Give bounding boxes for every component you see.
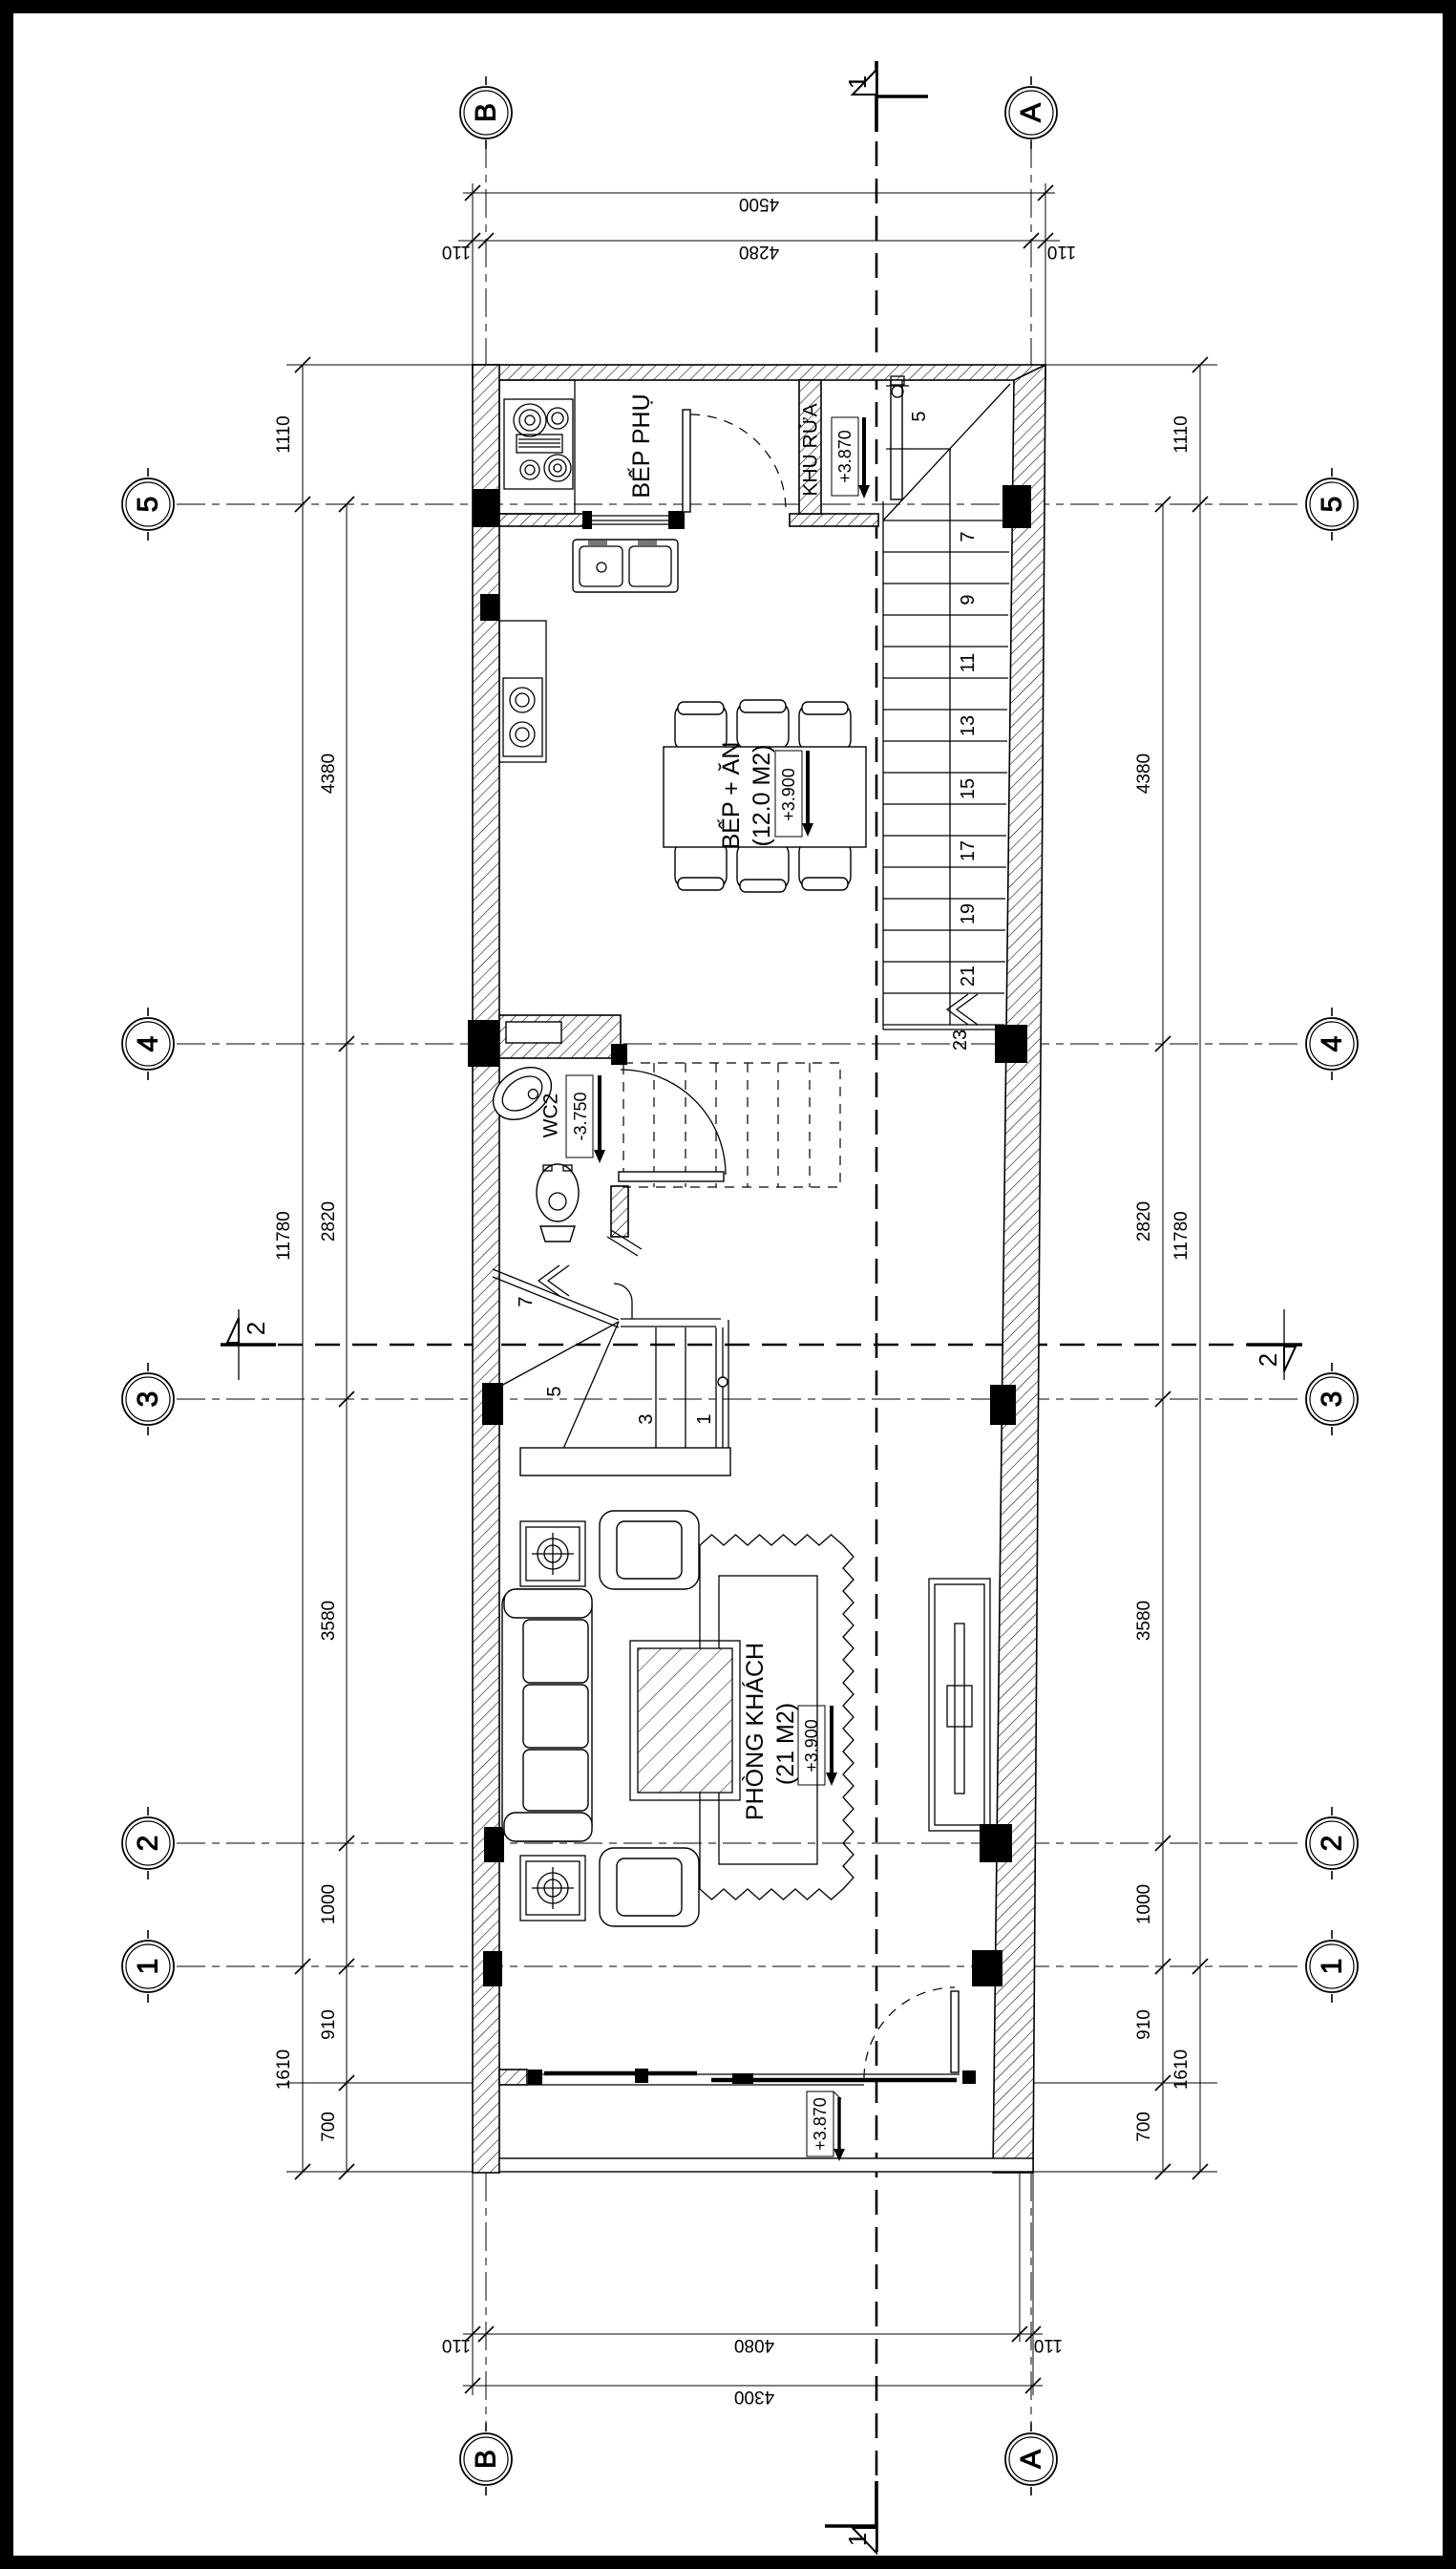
svg-text:9: 9 — [958, 594, 979, 605]
dim-top-total: 4500 — [739, 194, 779, 214]
svg-text:+3.870: +3.870 — [835, 430, 855, 483]
kitchen-sink-icon — [573, 540, 678, 592]
svg-text:1110: 1110 — [1171, 415, 1192, 453]
window-post-right — [668, 511, 685, 529]
svg-text:700: 700 — [319, 2112, 339, 2142]
svg-text:1000: 1000 — [1134, 1884, 1154, 1924]
coffee-table-icon — [630, 1641, 740, 1800]
column — [484, 1827, 504, 1862]
svg-text:23: 23 — [950, 1030, 971, 1051]
wc2-door-post — [611, 1044, 627, 1065]
wall-khu-rua-right — [891, 380, 902, 499]
svg-text:11780: 11780 — [1171, 1211, 1192, 1260]
svg-text:1: 1 — [133, 1959, 164, 1975]
window-post-left — [582, 511, 592, 529]
svg-text:+3.900: +3.900 — [779, 768, 798, 821]
svg-text:3: 3 — [133, 1391, 164, 1408]
wall-left — [473, 365, 499, 2173]
svg-text:1: 1 — [843, 75, 872, 89]
sofa-icon — [502, 1589, 592, 1841]
entry-door-leaf — [951, 1991, 959, 2072]
column — [990, 1385, 1016, 1425]
svg-text:2: 2 — [1254, 1353, 1282, 1367]
dim-bottom-left-off: 110 — [442, 2335, 471, 2355]
wall-divider-kitchen — [499, 514, 589, 526]
column — [482, 1383, 503, 1425]
wall-grid4-niche — [506, 1022, 561, 1043]
dim-bottom-mid: 4080 — [734, 2335, 774, 2355]
svg-text:21: 21 — [958, 966, 979, 987]
svg-text:2820: 2820 — [319, 1201, 339, 1242]
dim-bottom-total: 4300 — [734, 2387, 774, 2407]
svg-text:3580: 3580 — [1134, 1601, 1154, 1641]
svg-text:1610: 1610 — [274, 2049, 294, 2090]
svg-text:3: 3 — [1317, 1391, 1348, 1408]
svg-text:910: 910 — [319, 2009, 339, 2040]
svg-text:19: 19 — [958, 903, 979, 924]
wall-wc2-stub — [611, 1186, 628, 1237]
balcony-parapet — [499, 2158, 1033, 2172]
khu-rua-label: KHU RỬA — [799, 403, 822, 496]
svg-text:1: 1 — [694, 1413, 715, 1424]
svg-text:5: 5 — [909, 411, 930, 421]
wc2-toilet-icon — [537, 1164, 579, 1242]
svg-text:700: 700 — [1134, 2112, 1154, 2142]
svg-text:+3.900: +3.900 — [802, 1719, 821, 1773]
svg-text:2820: 2820 — [1134, 1201, 1154, 1242]
svg-text:1: 1 — [843, 2533, 872, 2546]
svg-text:5: 5 — [1317, 497, 1348, 513]
svg-text:1000: 1000 — [319, 1884, 339, 1924]
svg-text:2: 2 — [133, 1836, 164, 1852]
svg-text:13: 13 — [958, 715, 979, 736]
svg-text:+3.870: +3.870 — [811, 2097, 830, 2151]
svg-text:1: 1 — [1317, 1959, 1348, 1975]
svg-text:B: B — [471, 2450, 502, 2469]
svg-text:7: 7 — [516, 1296, 537, 1306]
wall-balcony-stub — [499, 2070, 527, 2085]
column — [468, 1020, 499, 1067]
wc2-label: WC2 — [540, 1093, 562, 1138]
svg-text:B: B — [471, 103, 502, 122]
svg-text:2: 2 — [242, 1322, 270, 1335]
svg-text:3580: 3580 — [319, 1601, 339, 1641]
dim-bottom-right-off: 110 — [1034, 2335, 1063, 2355]
column — [980, 1824, 1012, 1862]
column — [483, 1951, 502, 1986]
floor-plan-svg: B A B A 5 4 3 2 1 5 4 3 2 1 1 1 2 2 4500… — [0, 0, 1456, 2569]
svg-text:910: 910 — [1134, 2009, 1154, 2040]
svg-text:4380: 4380 — [319, 754, 339, 794]
bep-phu-door-leaf — [683, 410, 690, 512]
drawing-sheet: B A B A 5 4 3 2 1 5 4 3 2 1 1 1 2 2 4500… — [0, 0, 1456, 2569]
svg-text:5: 5 — [133, 497, 164, 513]
svg-text:15: 15 — [958, 778, 979, 799]
door-track-block — [962, 2070, 976, 2084]
svg-text:4: 4 — [133, 1036, 164, 1052]
bep-an-area: (12.0 M2) — [749, 745, 775, 847]
armchair-icon — [600, 1511, 699, 1589]
column — [995, 1025, 1027, 1063]
bep-an-label: BẾP + ĂN — [717, 742, 745, 850]
wall-top — [473, 365, 1045, 380]
svg-text:A: A — [1016, 103, 1047, 122]
svg-text:4: 4 — [1317, 1036, 1348, 1052]
door-track-block — [635, 2069, 648, 2083]
svg-text:7: 7 — [958, 531, 979, 541]
dim-top-left-off: 110 — [442, 242, 471, 262]
svg-text:11: 11 — [958, 653, 979, 673]
dim-top-mid: 4280 — [739, 242, 779, 262]
door-track-block — [528, 2070, 542, 2085]
svg-text:A: A — [1016, 2450, 1047, 2469]
phong-khach-area: (21 M2) — [772, 1703, 799, 1785]
wall-divider-kitchen2 — [790, 514, 878, 526]
svg-text:2: 2 — [1317, 1836, 1348, 1852]
stair-newel — [718, 1377, 728, 1387]
armchair-icon — [600, 1848, 699, 1926]
svg-text:1610: 1610 — [1171, 2049, 1192, 2090]
svg-text:-3.750: -3.750 — [571, 1092, 590, 1140]
svg-text:4380: 4380 — [1134, 754, 1154, 794]
stair-base-wall — [520, 1448, 730, 1476]
column — [473, 489, 499, 527]
wc2-door-leaf — [619, 1172, 724, 1181]
dim-top-right-off: 110 — [1047, 242, 1076, 262]
phong-khach-label: PHÒNG KHÁCH — [741, 1643, 769, 1820]
bep-phu-label: BẾP PHỤ — [627, 393, 655, 498]
svg-text:1110: 1110 — [274, 415, 294, 453]
door-track-block — [732, 2073, 753, 2084]
balcony-level-marker: +3.870 — [807, 2091, 845, 2161]
column — [1002, 485, 1031, 528]
column — [480, 594, 499, 621]
column — [972, 1950, 1002, 1986]
sheet-background — [0, 0, 1456, 2569]
svg-text:5: 5 — [544, 1386, 565, 1396]
svg-text:3: 3 — [636, 1413, 657, 1424]
svg-text:17: 17 — [958, 840, 979, 861]
svg-text:11780: 11780 — [274, 1211, 294, 1260]
